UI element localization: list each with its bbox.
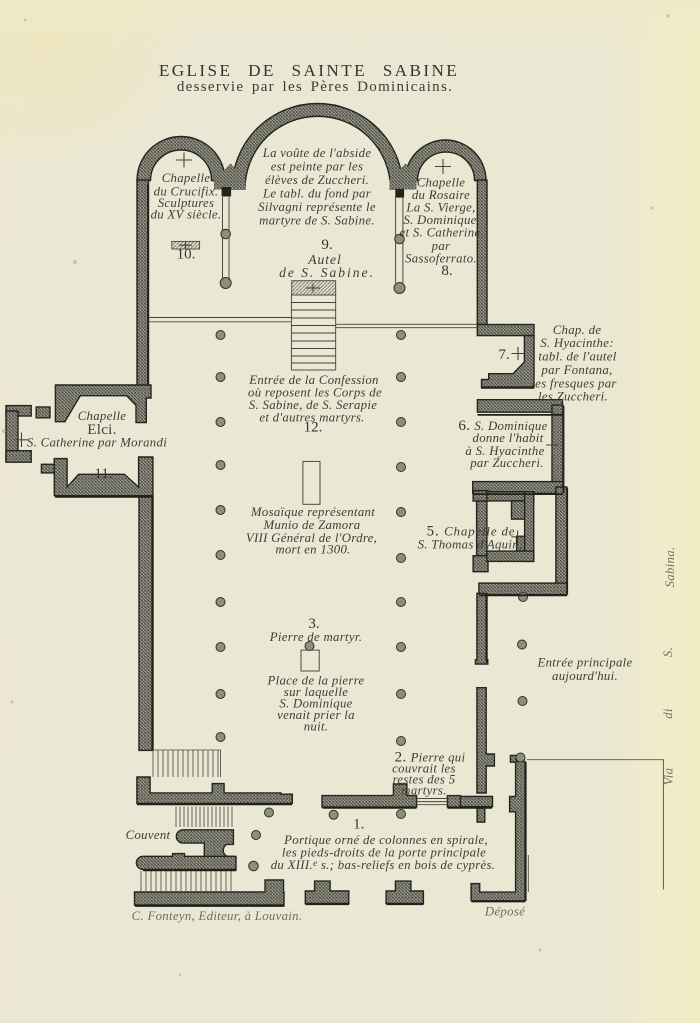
svg-text:Entrée principale: Entrée principale bbox=[536, 656, 632, 670]
svg-text:du XIII.e s.; bas-reliefs en b: du XIII.e s.; bas-reliefs en bois de cyp… bbox=[271, 858, 496, 872]
svg-text:S.: S. bbox=[661, 647, 675, 657]
svg-text:Via: Via bbox=[662, 768, 676, 786]
svg-text:Munio de Zamora: Munio de Zamora bbox=[263, 518, 361, 532]
svg-text:Couvent: Couvent bbox=[126, 828, 171, 842]
svg-text:Chap. de: Chap. de bbox=[553, 323, 602, 337]
svg-text:11.: 11. bbox=[94, 466, 112, 482]
svg-text:Déposé: Déposé bbox=[484, 905, 526, 919]
svg-text:est peinte par les: est peinte par les bbox=[271, 160, 363, 174]
svg-text:C. Fonteyn, Editeur, à Louvain: C. Fonteyn, Editeur, à Louvain. bbox=[132, 909, 303, 923]
svg-text:S. Thomas d'Aquin,: S. Thomas d'Aquin, bbox=[418, 538, 523, 552]
svg-text:Silvagni représente le: Silvagni représente le bbox=[258, 200, 376, 214]
svg-text:mort en 1300.: mort en 1300. bbox=[275, 543, 350, 557]
svg-text:par Zuccheri.: par Zuccheri. bbox=[469, 456, 544, 470]
svg-text:et S. Catherine: et S. Catherine bbox=[400, 226, 481, 240]
svg-text:S. Hyacinthe:: S. Hyacinthe: bbox=[540, 336, 614, 350]
svg-text:EGLISE DE SAINTE SABINE: EGLISE DE SAINTE SABINE bbox=[159, 61, 459, 80]
svg-text:Sabina.: Sabina. bbox=[663, 547, 677, 588]
svg-text:tabl. de l'autel: tabl. de l'autel bbox=[538, 350, 616, 364]
svg-text:par Fontana,: par Fontana, bbox=[540, 363, 612, 377]
svg-text:desservie par les Pères Domini: desservie par les Pères Dominicains. bbox=[177, 79, 453, 95]
svg-text:10.: 10. bbox=[177, 247, 196, 263]
svg-text:Pierre de martyr.: Pierre de martyr. bbox=[269, 630, 362, 644]
svg-text:élèves de Zuccheri.: élèves de Zuccheri. bbox=[265, 173, 369, 187]
svg-text:8.: 8. bbox=[441, 263, 452, 279]
svg-text:de S. Sabine.: de S. Sabine. bbox=[279, 265, 375, 280]
svg-text:nuit.: nuit. bbox=[304, 720, 329, 734]
svg-text:Mosaïque représentant: Mosaïque représentant bbox=[250, 505, 375, 519]
svg-text:martyre de S. Sabine.: martyre de S. Sabine. bbox=[259, 214, 375, 228]
svg-text:S. Catherine par Morandi: S. Catherine par Morandi bbox=[27, 436, 167, 450]
svg-text:Chapelle: Chapelle bbox=[162, 171, 211, 185]
svg-text:La voûte de l'abside: La voûte de l'abside bbox=[262, 146, 372, 160]
svg-text:les fresques par: les fresques par bbox=[531, 377, 617, 391]
svg-text:martyrs.: martyrs. bbox=[401, 784, 446, 798]
svg-text:9.: 9. bbox=[321, 237, 332, 253]
svg-text:du XV siècle.: du XV siècle. bbox=[151, 208, 222, 222]
svg-text:aujourd'hui.: aujourd'hui. bbox=[552, 669, 618, 683]
svg-text:donne l'habit: donne l'habit bbox=[473, 431, 544, 445]
svg-text:Le tabl. du fond par: Le tabl. du fond par bbox=[262, 187, 372, 201]
svg-text:les Zuccheri.: les Zuccheri. bbox=[538, 390, 608, 404]
svg-text:12.: 12. bbox=[304, 420, 323, 436]
svg-text:7.: 7. bbox=[498, 347, 509, 363]
svg-text:Chapelle: Chapelle bbox=[78, 409, 127, 423]
svg-text:1.: 1. bbox=[353, 817, 364, 833]
svg-text:di: di bbox=[661, 708, 675, 719]
